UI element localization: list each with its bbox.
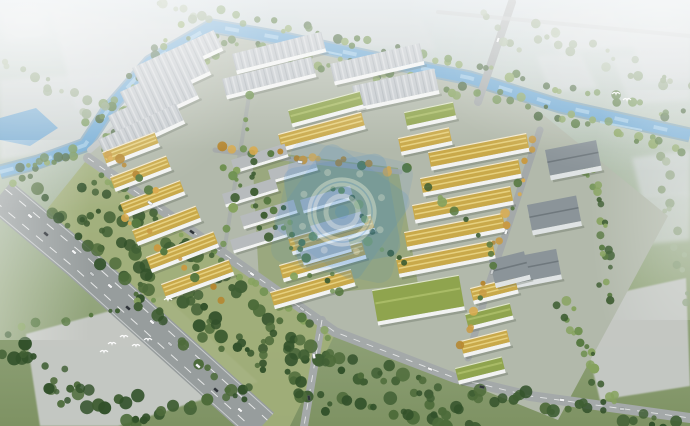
tree [611, 391, 619, 399]
tree [206, 319, 211, 324]
tree [7, 351, 21, 365]
tree [571, 306, 576, 311]
street-tree [401, 260, 407, 266]
tree [265, 336, 274, 345]
tree [565, 406, 572, 413]
street-tree [257, 225, 262, 230]
tree [131, 244, 141, 254]
tree [197, 332, 208, 343]
tree [549, 409, 555, 415]
tree [419, 377, 427, 385]
street-tree [270, 207, 278, 215]
tree [80, 400, 94, 414]
street-tree [424, 183, 432, 191]
tree [441, 410, 451, 420]
tree [193, 319, 206, 332]
street-tree [290, 272, 298, 280]
tree [261, 339, 266, 344]
tree [192, 264, 200, 272]
tree [19, 350, 27, 358]
tree [333, 352, 345, 364]
scene-canvas [0, 0, 690, 426]
tree [380, 378, 387, 385]
street-tree [190, 273, 199, 282]
street-tree [489, 262, 497, 270]
haze-overlay-left [0, 140, 90, 340]
street-tree [480, 281, 485, 286]
tree [498, 393, 508, 403]
tree [576, 339, 584, 347]
tree [581, 351, 588, 358]
street-tree [220, 241, 226, 247]
tree [115, 308, 120, 313]
tree [259, 351, 268, 360]
tree [584, 344, 589, 349]
tree [241, 396, 247, 402]
tree [201, 394, 213, 406]
tree [260, 367, 266, 373]
tree [295, 376, 307, 388]
tree [338, 367, 346, 375]
tree [156, 406, 166, 416]
tree [222, 393, 230, 401]
street-tree [514, 179, 523, 188]
tree [118, 272, 131, 285]
street-tree [437, 197, 447, 207]
tree [355, 398, 367, 410]
tree [561, 314, 569, 322]
street-tree [510, 206, 514, 210]
tree [562, 296, 572, 306]
tree [285, 353, 298, 366]
street-tree [154, 244, 161, 251]
street-tree [181, 265, 187, 271]
street-tree [500, 208, 510, 218]
tree [347, 354, 358, 365]
street-tree [160, 248, 168, 256]
tree [600, 407, 606, 413]
tree [371, 368, 382, 379]
car [559, 398, 564, 401]
tree [188, 400, 196, 408]
tree [403, 409, 414, 420]
street-tree [335, 287, 344, 296]
street-tree [478, 295, 483, 300]
street-tree [518, 192, 522, 196]
street-tree [476, 233, 481, 238]
tree [108, 309, 112, 313]
street-tree [496, 237, 503, 244]
street-tree [261, 212, 268, 219]
tree [94, 258, 106, 270]
tree [566, 326, 574, 334]
tree [322, 358, 330, 366]
tree [317, 391, 324, 398]
tree [579, 398, 588, 407]
tree [629, 416, 638, 425]
tree [600, 399, 606, 405]
tree [245, 347, 250, 352]
tree [132, 416, 139, 423]
tree [214, 330, 228, 344]
aerial-rendering [0, 0, 690, 426]
tree [612, 399, 617, 404]
street-tree [325, 278, 331, 284]
street-tree [468, 324, 474, 330]
tree [520, 385, 533, 398]
street-tree [128, 221, 132, 225]
tree [360, 379, 367, 386]
tree [104, 211, 116, 223]
tree [358, 372, 365, 379]
tree [305, 319, 314, 328]
tree [61, 366, 68, 373]
tree [140, 268, 153, 281]
tree [179, 233, 184, 238]
street-tree [264, 232, 273, 241]
street-tree [178, 257, 182, 261]
tree [43, 383, 54, 394]
street-tree [210, 284, 216, 290]
tree [327, 401, 332, 406]
tree [54, 389, 60, 395]
tree [297, 313, 307, 323]
street-tree [503, 221, 511, 229]
street-tree [223, 225, 231, 233]
tree [434, 383, 442, 391]
tree [276, 317, 283, 324]
tree [426, 394, 434, 402]
tree [591, 352, 595, 356]
tree [236, 274, 243, 281]
tree [597, 381, 604, 388]
tree [151, 298, 156, 303]
street-tree [469, 307, 478, 316]
tree [231, 288, 242, 299]
tree [252, 280, 259, 287]
street-tree [456, 341, 464, 349]
street-tree [132, 219, 142, 229]
street-tree [397, 255, 402, 260]
tree [285, 369, 291, 375]
tree [389, 410, 399, 420]
street-tree [121, 214, 129, 222]
street-tree [487, 241, 493, 247]
tree [30, 353, 37, 360]
tree [119, 396, 132, 409]
tree [140, 416, 148, 424]
tree [384, 391, 398, 405]
tree [209, 253, 215, 259]
street-tree [463, 217, 468, 222]
tree [99, 228, 105, 234]
street-tree [450, 206, 459, 215]
tree [295, 335, 306, 346]
tree [224, 387, 230, 393]
tree [64, 397, 71, 404]
tree [245, 383, 253, 391]
tree [237, 339, 246, 348]
tree [91, 243, 104, 256]
street-tree [147, 228, 153, 234]
tree [255, 363, 260, 368]
tree [320, 326, 328, 334]
tree [178, 340, 189, 351]
tree [384, 360, 395, 371]
haze-overlay-right [590, 90, 690, 320]
street-tree [307, 273, 312, 278]
tree [639, 409, 649, 419]
tree [416, 390, 422, 396]
tree [589, 364, 599, 374]
tree [218, 346, 224, 352]
tree [158, 316, 168, 326]
tree [321, 407, 330, 416]
tree [210, 373, 218, 381]
tree [134, 302, 143, 311]
tree [396, 368, 410, 382]
tree [370, 404, 377, 411]
tree [553, 301, 561, 309]
tree [98, 401, 111, 414]
tree [200, 303, 208, 311]
tree [109, 257, 121, 269]
tree [50, 377, 57, 384]
tree [57, 400, 65, 408]
street-tree [218, 297, 225, 304]
street-tree [330, 289, 335, 294]
tree [651, 415, 656, 420]
tree [325, 335, 331, 341]
tree [260, 287, 269, 296]
tree [167, 400, 179, 412]
tree [41, 362, 48, 369]
tree [454, 404, 464, 414]
tree [83, 384, 94, 395]
tree [142, 284, 155, 297]
tree [430, 411, 437, 418]
tree [298, 349, 309, 360]
tree [588, 379, 595, 386]
tree [574, 327, 582, 335]
tree [293, 388, 303, 398]
street-tree [488, 251, 494, 257]
tree [204, 364, 211, 371]
tree [131, 389, 144, 402]
tree [342, 395, 353, 406]
tree [270, 330, 278, 338]
tree [233, 393, 238, 398]
tree [325, 349, 334, 358]
tree [259, 360, 267, 368]
car [619, 407, 624, 410]
